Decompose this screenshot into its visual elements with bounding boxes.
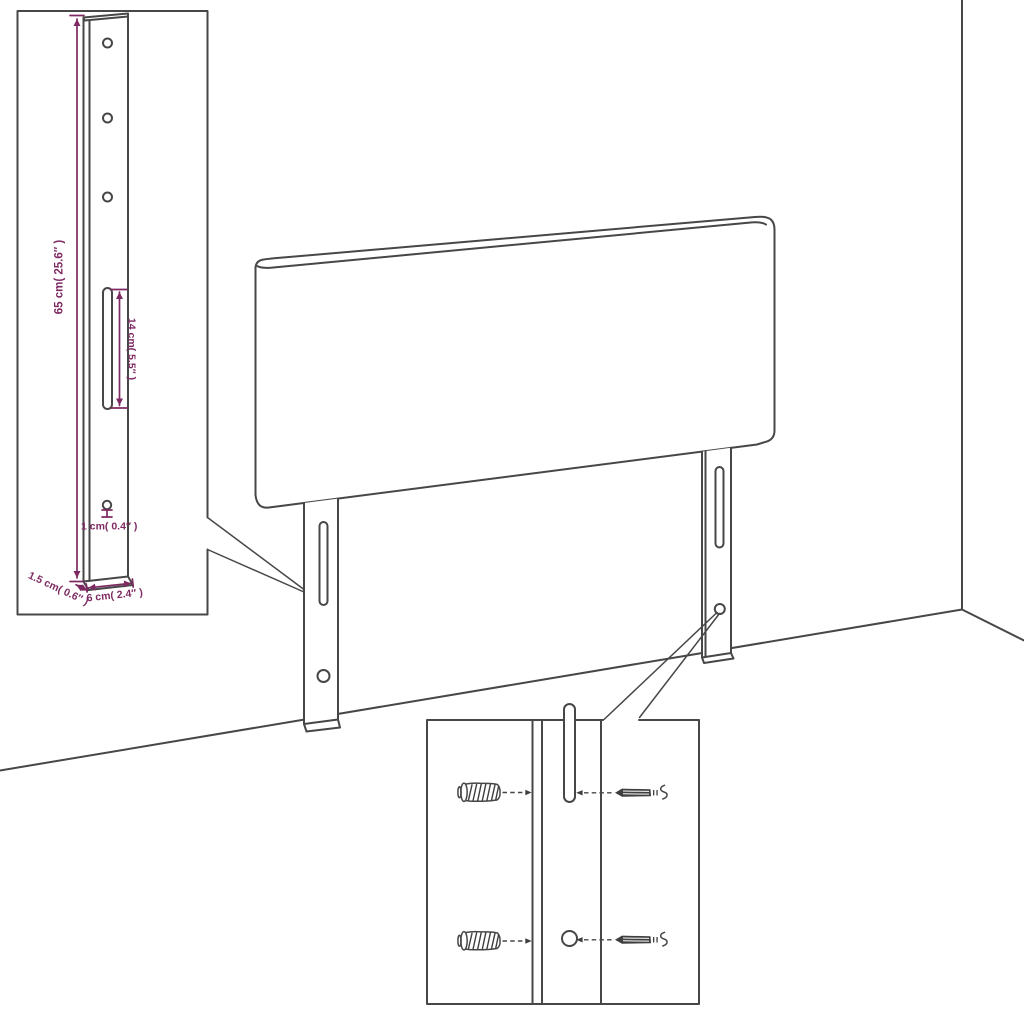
diagram-canvas: 65 cm( 25.6″ ) 14 cm( 5.5″ ) 1 cm( 0.4″ … [0, 0, 1024, 1024]
leg-hole-2 [103, 114, 112, 123]
leg-hole-1 [103, 39, 112, 48]
panel-outline [255, 217, 774, 508]
left-leg-hole [318, 670, 330, 682]
headboard-panel [255, 217, 774, 508]
leg-callout-pointer [208, 518, 305, 593]
leg-detail-callout-box: 65 cm( 25.6″ ) 14 cm( 5.5″ ) 1 cm( 0.4″ … [18, 11, 208, 615]
assembly-diagram: 65 cm( 25.6″ ) 14 cm( 5.5″ ) 1 cm( 0.4″ … [0, 0, 1024, 1024]
mounting-slot [564, 704, 575, 802]
callout-pointer-lines [208, 518, 720, 720]
leg-hole-3 [103, 193, 112, 202]
leg-slot [103, 288, 112, 409]
mounting-detail-callout-box [427, 704, 699, 1004]
right-leg-slot [716, 467, 724, 548]
left-leg-slot [320, 522, 328, 605]
leg-small-hole [103, 501, 111, 509]
dim-hole-diameter-label: 1 cm( 0.4″ ) [81, 521, 137, 533]
floor-line-right [962, 610, 1024, 641]
headboard-left-leg [304, 499, 340, 732]
dim-slot-length-label: 14 cm( 5.5″ ) [126, 318, 138, 380]
mounting-hole [562, 931, 577, 946]
dim-height-label: 65 cm( 25.6″ ) [54, 240, 66, 315]
